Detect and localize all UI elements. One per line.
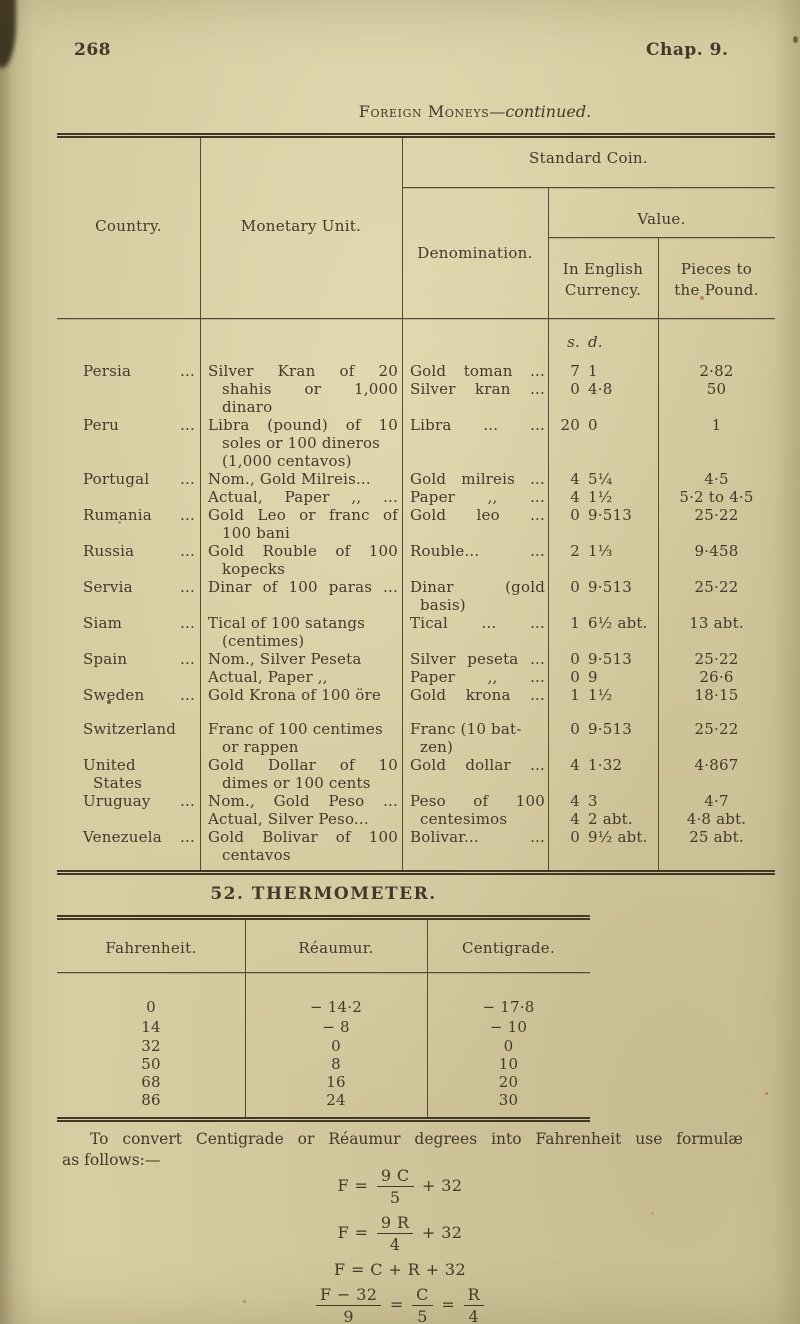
cell-country: Rumania... — [83, 506, 195, 525]
cell-reaumur: − 8 — [245, 1018, 427, 1037]
cell-reaumur: 8 — [245, 1055, 427, 1074]
cell-denomination: Dinar (gold — [410, 578, 545, 597]
cell-value-s: 0 — [537, 578, 580, 597]
cell-value-d: 9·513 — [588, 506, 655, 525]
cell-monetary-unit: Actual, Paper ,, — [208, 668, 398, 687]
sd-header-s: s. — [553, 333, 580, 352]
cell-monetary-unit: Gold Leo or franc of — [208, 506, 398, 525]
scan-speckle — [793, 36, 798, 43]
col-header-country: Country. — [57, 217, 200, 235]
thermometer-heading: 52. THERMOMETER. — [57, 884, 590, 904]
cell-value-d: 2 abt. — [588, 810, 655, 829]
country-name: Rumania — [83, 506, 152, 525]
cell-denomination: Silver kran ... — [410, 380, 545, 399]
cell-monetary-unit: shahis or 1,000 — [222, 380, 398, 399]
cell-value-s: 4 — [537, 756, 580, 775]
conversion-note-line2: as follows:— — [62, 1151, 160, 1169]
formula: F = 9 R4 + 32 — [230, 1213, 570, 1254]
cell-value-s: 0 — [537, 506, 580, 525]
cell-pieces: 50 — [658, 380, 775, 399]
cell-pieces: 25·22 — [658, 650, 775, 669]
cell-value-d: 1 — [588, 362, 655, 381]
cell-pieces: 4·5 — [658, 470, 775, 489]
cell-value-s: 4 — [537, 470, 580, 489]
cell-denomination: Gold milreis ... — [410, 470, 545, 489]
leader-dots: ... — [180, 506, 195, 525]
cell-country: Uruguay... — [83, 792, 195, 811]
cell-pieces: 2·82 — [658, 362, 775, 381]
leader-dots: ... — [180, 362, 195, 381]
cell-denomination: Paper ,, ... — [410, 668, 545, 687]
cell-value-d: 0 — [588, 416, 655, 435]
cell-pieces: 4·7 — [658, 792, 775, 811]
cell-value-s: 20 — [537, 416, 580, 435]
country-name: Russia — [83, 542, 134, 561]
cell-denomination: zen) — [420, 738, 545, 757]
chapter-label: Chap. 9. — [646, 40, 728, 60]
cell-denomination: Tical ... ... — [410, 614, 545, 633]
cell-value-s: 0 — [537, 828, 580, 847]
cell-centigrade: − 17·8 — [427, 998, 590, 1017]
col-header-in-english: In English — [548, 260, 658, 278]
col-header-pieces: Pieces to — [658, 260, 775, 278]
col-header-value: Value. — [548, 210, 775, 228]
cell-centigrade: 10 — [427, 1055, 590, 1074]
formula: F − 329 = C5 = R4 — [230, 1285, 570, 1324]
cell-value-s: 0 — [537, 720, 580, 739]
cell-pieces: 25 abt. — [658, 828, 775, 847]
cell-pieces: 25·22 — [658, 578, 775, 597]
cell-monetary-unit: Gold Rouble of 100 — [208, 542, 398, 561]
country-name: Venezuela — [83, 828, 162, 847]
cell-value-d: 9½ abt. — [588, 828, 655, 847]
cell-pieces: 26·6 — [658, 668, 775, 687]
leader-dots: ... — [180, 542, 195, 561]
cell-country: States — [93, 774, 205, 793]
cell-fahrenheit: 50 — [57, 1055, 245, 1074]
cell-monetary-unit: Actual, Silver Peso... — [208, 810, 398, 829]
cell-denomination: Libra ... ... — [410, 416, 545, 435]
country-name: Uruguay — [83, 792, 151, 811]
cell-value-s: 1 — [537, 614, 580, 633]
cell-monetary-unit: (centimes) — [222, 632, 398, 651]
cell-monetary-unit: Actual, Paper ,, ... — [208, 488, 398, 507]
cell-fahrenheit: 68 — [57, 1073, 245, 1092]
cell-value-d: 4·8 — [588, 380, 655, 399]
table-bottom-rule — [57, 870, 775, 875]
leader-dots: ... — [180, 614, 195, 633]
country-name: Persia — [83, 362, 131, 381]
cell-fahrenheit: 14 — [57, 1018, 245, 1037]
cell-centigrade: 30 — [427, 1091, 590, 1110]
cell-denomination: Gold toman ... — [410, 362, 545, 381]
cell-denomination: Rouble... ... — [410, 542, 545, 561]
cell-monetary-unit: soles or 100 dineros — [222, 434, 398, 453]
cell-value-s: 0 — [537, 668, 580, 687]
table-bottom-rule — [57, 1117, 590, 1122]
cell-country: Venezuela... — [83, 828, 195, 847]
cell-value-d: 1·32 — [588, 756, 655, 775]
col-header-standard-coin: Standard Coin. — [402, 149, 775, 167]
cell-denomination: Silver peseta ... — [410, 650, 545, 669]
cell-monetary-unit: Libra (pound) of 10 — [208, 416, 398, 435]
fraction: R4 — [461, 1285, 487, 1324]
conversion-formulas: F = 9 C5 + 32F = 9 R4 + 32F = C + R + 32… — [230, 1166, 570, 1324]
cell-pieces: 25·22 — [658, 506, 775, 525]
col-header-denomination: Denomination. — [402, 244, 548, 262]
cell-value-s: 0 — [537, 650, 580, 669]
table-top-rule — [57, 915, 590, 920]
cell-country: Siam... — [83, 614, 195, 633]
caption-continued: —continued. — [489, 102, 591, 121]
cell-country: Persia... — [83, 362, 195, 381]
cell-pieces: 13 abt. — [658, 614, 775, 633]
country-name: Peru — [83, 416, 119, 435]
leader-dots: ... — [180, 470, 195, 489]
thermometer-table: Fahrenheit. Réaumur. Centigrade. 0− 14·2… — [57, 915, 590, 1122]
cell-value-s: 4 — [537, 810, 580, 829]
cell-monetary-unit: Silver Kran of 20 — [208, 362, 398, 381]
cell-value-d: 3 — [588, 792, 655, 811]
cell-monetary-unit: (1,000 centavos) — [222, 452, 398, 471]
cell-monetary-unit: centavos — [222, 846, 398, 865]
fraction: F − 329 — [313, 1285, 384, 1324]
foreign-moneys-table: Country. Monetary Unit. Standard Coin. D… — [57, 133, 775, 875]
country-name: Sweden — [83, 686, 144, 705]
leader-dots: ... — [180, 792, 195, 811]
cell-value-s: 7 — [537, 362, 580, 381]
table-top-rule — [57, 133, 775, 138]
col-header-fahrenheit: Fahrenheit. — [57, 939, 245, 957]
col-header-monetary-unit: Monetary Unit. — [200, 217, 402, 235]
cell-value-d: 9 — [588, 668, 655, 687]
caption-main: Foreign Moneys — [359, 102, 490, 121]
cell-value-s: 2 — [537, 542, 580, 561]
fraction: C5 — [409, 1285, 436, 1324]
cell-country: Servia... — [83, 578, 195, 597]
cell-pieces: 9·458 — [658, 542, 775, 561]
cell-fahrenheit: 32 — [57, 1037, 245, 1056]
cell-monetary-unit: Gold Krona of 100 öre — [208, 686, 398, 705]
leader-dots: ... — [180, 650, 195, 669]
cell-denomination: Bolivar... ... — [410, 828, 545, 847]
cell-pieces: 4·867 — [658, 756, 775, 775]
scan-speckle — [765, 1092, 768, 1095]
cell-reaumur: 0 — [245, 1037, 427, 1056]
leader-dots: ... — [180, 578, 195, 597]
cell-centigrade: 0 — [427, 1037, 590, 1056]
cell-country: Russia... — [83, 542, 195, 561]
cell-monetary-unit: Nom., Silver Peseta — [208, 650, 398, 669]
header-bottom-rule — [57, 318, 775, 319]
cell-monetary-unit: Dinar of 100 paras ... — [208, 578, 398, 597]
cell-reaumur: 16 — [245, 1073, 427, 1092]
cell-monetary-unit: Gold Dollar of 10 — [208, 756, 398, 775]
cell-value-s: 1 — [537, 686, 580, 705]
cell-pieces: 18·15 — [658, 686, 775, 705]
cell-monetary-unit: or rappen — [222, 738, 398, 757]
leader-dots: ... — [180, 828, 195, 847]
column-divider — [200, 138, 201, 870]
cell-country: Peru... — [83, 416, 195, 435]
col-header-currency: Currency. — [548, 281, 658, 299]
cell-value-d: 9·513 — [588, 720, 655, 739]
cell-denomination: Gold krona ... — [410, 686, 545, 705]
cell-value-d: 9·513 — [588, 578, 655, 597]
fraction: 9 R4 — [374, 1213, 417, 1254]
book-page: 268 Chap. 9. Foreign Moneys—continued. C… — [0, 0, 800, 1324]
header-bottom-rule — [57, 972, 590, 973]
col-header-centigrade: Centigrade. — [427, 939, 590, 957]
cell-country: Spain... — [83, 650, 195, 669]
fraction: 9 C5 — [374, 1166, 417, 1207]
cell-pieces: 1 — [658, 416, 775, 435]
cell-centigrade: 20 — [427, 1073, 590, 1092]
cell-value-s: 4 — [537, 792, 580, 811]
cell-denomination: Gold leo ... — [410, 506, 545, 525]
cell-centigrade: − 10 — [427, 1018, 590, 1037]
cell-pieces: 5·2 to 4·5 — [658, 488, 775, 507]
cell-denomination: Gold dollar ... — [410, 756, 545, 775]
cell-country: Sweden... — [83, 686, 195, 705]
country-name: Spain — [83, 650, 127, 669]
country-name: Siam — [83, 614, 122, 633]
cell-value-d: 6½ abt. — [588, 614, 655, 633]
cell-value-s: 0 — [537, 380, 580, 399]
col-header-pound: the Pound. — [658, 281, 775, 299]
cell-monetary-unit: Franc of 100 centimes — [208, 720, 398, 739]
formula: F = C + R + 32 — [230, 1260, 570, 1279]
cell-monetary-unit: Gold Bolivar of 100 — [208, 828, 398, 847]
cell-pieces: 25·22 — [658, 720, 775, 739]
value-rule — [548, 237, 775, 238]
cell-country: Switzerland — [83, 720, 195, 739]
cell-fahrenheit: 86 — [57, 1091, 245, 1110]
page-number: 268 — [74, 40, 111, 60]
cell-monetary-unit: kopecks — [222, 560, 398, 579]
country-name: Portugal — [83, 470, 149, 489]
cell-reaumur: 24 — [245, 1091, 427, 1110]
cell-monetary-unit: Nom., Gold Peso ... — [208, 792, 398, 811]
leader-dots: ... — [180, 686, 195, 705]
formula: F = 9 C5 + 32 — [230, 1166, 570, 1207]
cell-monetary-unit: dinaro — [222, 398, 398, 417]
cell-denomination: Paper ,, ... — [410, 488, 545, 507]
cell-denomination: Peso of 100 — [410, 792, 545, 811]
cell-value-d: 1½ — [588, 686, 655, 705]
cell-country: United — [83, 756, 195, 775]
conversion-note-line1: To convert Centigrade or Réaumur degrees… — [90, 1130, 743, 1149]
cell-value-d: 9·513 — [588, 650, 655, 669]
country-name: Servia — [83, 578, 133, 597]
cell-country: Portugal... — [83, 470, 195, 489]
cell-monetary-unit: Nom., Gold Milreis... — [208, 470, 398, 489]
moneys-caption: Foreign Moneys—continued. — [275, 102, 675, 121]
scan-shadow-artifact — [0, 0, 16, 68]
cell-value-d: 5¼ — [588, 470, 655, 489]
cell-denomination: centesimos — [420, 810, 545, 829]
scan-speckle — [651, 1212, 654, 1215]
cell-denomination: Franc (10 bat- — [410, 720, 545, 739]
cell-denomination: basis) — [420, 596, 545, 615]
cell-monetary-unit: Tical of 100 satangs — [208, 614, 398, 633]
cell-value-d: 1½ — [588, 488, 655, 507]
cell-value-s: 4 — [537, 488, 580, 507]
cell-value-d: 1⅓ — [588, 542, 655, 561]
cell-reaumur: − 14·2 — [245, 998, 427, 1017]
standard-coin-rule — [402, 187, 775, 188]
cell-fahrenheit: 0 — [57, 998, 245, 1017]
cell-monetary-unit: dimes or 100 cents — [222, 774, 398, 793]
leader-dots: ... — [180, 416, 195, 435]
cell-pieces: 4·8 abt. — [658, 810, 775, 829]
sd-header-d: d. — [588, 333, 618, 352]
cell-monetary-unit: 100 bani — [222, 524, 398, 543]
col-header-reaumur: Réaumur. — [245, 939, 427, 957]
